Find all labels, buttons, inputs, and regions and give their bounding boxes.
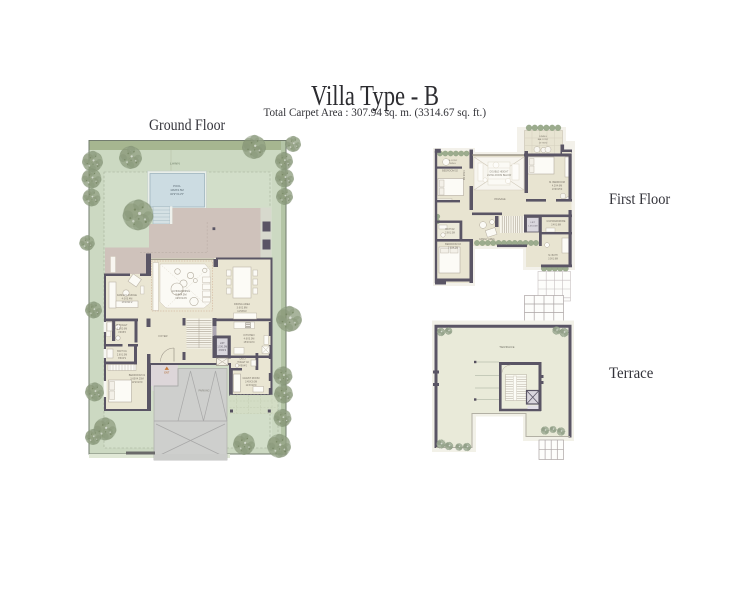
svg-text:3.6X4.2M: 3.6X4.2M — [462, 170, 464, 180]
svg-text:PARKING: PARKING — [198, 390, 209, 393]
svg-text:3.6X4.2M: 3.6X4.2M — [448, 246, 458, 249]
svg-text:5.8X4.5M: 5.8X4.5M — [175, 293, 186, 297]
svg-text:ENT: ENT — [164, 371, 170, 375]
svg-text:15'0X10'0: 15'0X10'0 — [244, 341, 256, 344]
svg-text:BALCONY: BALCONY — [538, 138, 549, 141]
svg-text:3.4X1.8M: 3.4X1.8M — [551, 224, 561, 226]
svg-text:LIFT: LIFT — [531, 222, 536, 224]
svg-text:BEDROOM 02: BEDROOM 02 — [442, 170, 458, 173]
svg-text:LAWN: LAWN — [170, 162, 180, 166]
svg-text:LIVING ROOM BELOW: LIVING ROOM BELOW — [487, 175, 512, 177]
svg-text:4'9X4'9: 4'9X4'9 — [219, 350, 227, 352]
svg-text:TERRACE: TERRACE — [499, 345, 514, 349]
svg-text:11'9X9'2: 11'9X9'2 — [237, 310, 247, 313]
svg-text:DINING: DINING — [539, 136, 547, 138]
svg-text:SWING: SWING — [448, 163, 456, 165]
svg-text:11'3X10'0: 11'3X10'0 — [246, 384, 257, 387]
svg-text:DOUBLE HEIGHT: DOUBLE HEIGHT — [490, 172, 509, 174]
svg-text:13'9X15'0: 13'9X15'0 — [552, 188, 563, 191]
svg-text:19'0X14'9: 19'0X14'9 — [175, 296, 187, 300]
svg-text:1.5X1.5M: 1.5X1.5M — [217, 346, 227, 348]
svg-text:13'7X8'0: 13'7X8'0 — [539, 142, 548, 144]
svg-text:LIVING/DINING: LIVING/DINING — [172, 289, 190, 293]
svg-text:M.W/WARDROBE: M.W/WARDROBE — [547, 220, 566, 223]
svg-text:8'6X4'9: 8'6X4'9 — [118, 357, 126, 360]
svg-text:3.0X1.8M: 3.0X1.8M — [548, 258, 558, 260]
svg-text:LIFT: LIFT — [220, 343, 225, 345]
svg-text:4'9X4'0: 4'9X4'0 — [239, 364, 247, 367]
svg-text:M. BATH: M. BATH — [548, 254, 557, 257]
svg-text:BATH 02: BATH 02 — [445, 228, 455, 231]
svg-text:1.5X1.5M: 1.5X1.5M — [528, 225, 538, 227]
svg-text:13'1X11'2: 13'1X11'2 — [122, 301, 133, 304]
svg-text:PASSAGE: PASSAGE — [494, 198, 506, 201]
svg-text:32'9"X11'5": 32'9"X11'5" — [170, 192, 184, 196]
svg-text:FOYER: FOYER — [159, 334, 168, 338]
svg-text:4'9X8'6: 4'9X8'6 — [118, 331, 126, 334]
svg-text:2.6X1.5M: 2.6X1.5M — [445, 232, 455, 234]
svg-text:11'9X13'9: 11'9X13'9 — [132, 381, 143, 384]
